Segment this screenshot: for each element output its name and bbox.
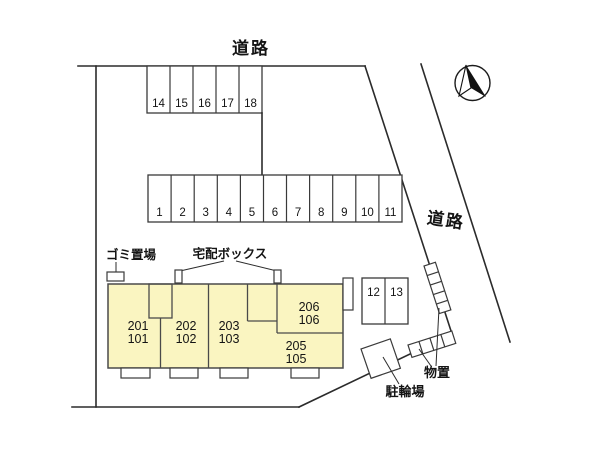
stall-17: 17 [221, 98, 234, 110]
bicycle-parking-pad [361, 339, 400, 378]
building-side-extension [343, 278, 353, 310]
road-label-top: 道路 [232, 38, 270, 58]
stall-10: 10 [361, 207, 374, 219]
site-plan-drawing: 道路 道路 14 15 16 17 18 1 2 3 4 [0, 0, 600, 450]
entrance-step-4 [291, 368, 319, 378]
delivery-box-1 [175, 270, 182, 283]
parking-top-row: 14 15 16 17 18 [147, 66, 262, 113]
unit-202: 202 [176, 319, 197, 333]
stall-3: 3 [202, 207, 208, 219]
unit-105: 105 [286, 352, 307, 366]
stall-16: 16 [198, 98, 211, 110]
stall-9: 9 [341, 207, 347, 219]
unit-201: 201 [128, 319, 149, 333]
garbage-label: ゴミ置場 [106, 247, 157, 262]
stall-8: 8 [318, 207, 324, 219]
stall-2: 2 [179, 207, 185, 219]
entrance-step-1 [121, 368, 150, 378]
stall-15: 15 [175, 98, 188, 110]
delivery-leader-right [236, 261, 277, 271]
garbage-box [107, 272, 124, 281]
parking-side-row: 12 13 [362, 278, 408, 324]
stall-13: 13 [390, 287, 403, 299]
stall-18: 18 [244, 98, 257, 110]
right-road-far-edge [421, 64, 510, 342]
unit-205: 205 [286, 339, 307, 353]
stall-6: 6 [272, 207, 278, 219]
unit-206: 206 [299, 300, 320, 314]
unit-106: 106 [299, 313, 320, 327]
parking-main-row: 1 2 3 4 5 6 7 8 9 10 11 [148, 175, 402, 222]
entrance-step-3 [220, 368, 248, 378]
unit-103: 103 [219, 332, 240, 346]
unit-102: 102 [176, 332, 197, 346]
stall-7: 7 [295, 207, 301, 219]
road-label-right: 道路 [426, 207, 466, 232]
stall-14: 14 [152, 98, 165, 110]
unit-101: 101 [128, 332, 149, 346]
storage-units-column [424, 262, 451, 313]
storage-units-row [408, 331, 456, 357]
delivery-leader-left [180, 261, 224, 271]
entrance-step-2 [170, 368, 198, 378]
stall-1: 1 [156, 207, 162, 219]
apartment-building: 201 101 202 102 203 103 206 106 205 105 [108, 270, 353, 378]
stall-12: 12 [367, 287, 380, 299]
stall-5: 5 [249, 207, 255, 219]
stall-4: 4 [226, 207, 233, 219]
site-plan: 道路 道路 14 15 16 17 18 1 2 3 4 [0, 0, 600, 450]
garbage-area: ゴミ置場 [106, 247, 157, 281]
north-arrow-icon [455, 65, 490, 101]
unit-203: 203 [219, 319, 240, 333]
stall-11: 11 [385, 207, 397, 219]
delivery-box-2 [274, 270, 281, 283]
storage-label: 物置 [424, 365, 450, 380]
delivery-box-area: 宅配ボックス [180, 246, 277, 271]
delivery-box-label: 宅配ボックス [193, 246, 268, 261]
bicycle-parking-label: 駐輪場 [385, 384, 424, 399]
